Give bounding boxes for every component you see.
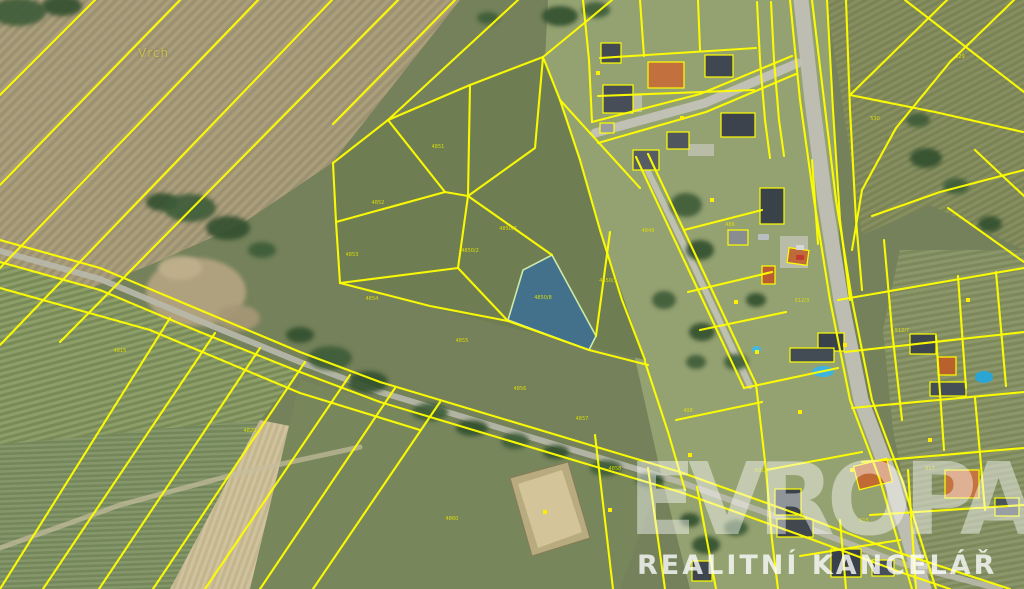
parcel-number-label: 4856: [514, 386, 527, 392]
parcel-number-label: 486: [725, 222, 735, 228]
cadastral-point-symbol: [543, 510, 547, 514]
tree-cluster: [978, 216, 1002, 232]
parcel-number-label: 515: [859, 518, 869, 524]
tree-cluster: [906, 113, 930, 127]
swimming-pool: [975, 371, 993, 383]
tree-cluster: [686, 355, 706, 369]
tree-cluster: [164, 194, 216, 222]
parcel-number-label: 4849: [642, 228, 655, 234]
parcel-number-label: 529: [955, 54, 965, 60]
cadastral-point-symbol: [688, 453, 692, 457]
building: [692, 561, 712, 581]
building: [831, 549, 861, 577]
cadastral-point-symbol: [966, 298, 970, 302]
tree-cluster: [501, 433, 529, 449]
cadastral-point-symbol: [680, 116, 684, 120]
cadastral-point-symbol: [850, 468, 854, 472]
parcel-number-label: 4815: [114, 348, 127, 354]
building: [790, 348, 834, 362]
cadastral-point-symbol: [710, 198, 714, 202]
parcel-number-label: 4850/1: [599, 278, 617, 284]
parcel-number-label: 4852: [372, 200, 385, 206]
tree-cluster: [477, 12, 499, 24]
parcel-number-label: 517: [925, 466, 935, 472]
cadastral-point-symbol: [755, 350, 759, 354]
cadastral-point-symbol: [928, 438, 932, 442]
tree-cluster: [910, 148, 942, 168]
parcel-number-label: 4858: [609, 466, 622, 472]
cadastral-point-symbol: [608, 508, 612, 512]
building: [721, 113, 755, 137]
parcel-number-label: 512/7: [895, 328, 909, 334]
building: [705, 55, 733, 77]
cadastral-point-symbol: [798, 410, 802, 414]
building: [603, 85, 633, 113]
parcel-number-label: 530: [870, 116, 880, 122]
parcel-number-label: 4851: [432, 144, 445, 150]
vehicle: [918, 563, 928, 569]
building: [648, 62, 684, 88]
building: [667, 132, 689, 149]
vehicle: [796, 255, 804, 260]
parcel-number-label: 498: [683, 408, 693, 414]
cadastral-map-viewport[interactable]: 48514852485348544850/24850/84850/1484948…: [0, 0, 1024, 589]
tree-cluster: [206, 216, 250, 240]
parcel-number-label: 4850/3: [499, 226, 517, 232]
vehicle: [796, 245, 804, 250]
aerial-cadastral-map[interactable]: 48514852485348544850/24850/84850/1484948…: [0, 0, 1024, 589]
building: [762, 266, 775, 284]
parcel-number-label: 4854: [366, 296, 379, 302]
tree-cluster: [652, 291, 676, 309]
tree-cluster: [680, 513, 700, 527]
tree-cluster: [746, 293, 766, 307]
tree-cluster: [724, 520, 748, 536]
building: [601, 43, 621, 63]
parcel-number-label: 4853: [346, 252, 359, 258]
parcel-number-label: 4857: [576, 416, 589, 422]
parcel-number-label: 4855: [456, 338, 469, 344]
building: [728, 230, 748, 245]
vehicle: [758, 234, 769, 240]
building: [930, 382, 966, 396]
tree-cluster: [286, 327, 314, 343]
place-label-vrch: Vrch: [138, 46, 169, 60]
parcel-number-label: 4820: [244, 428, 257, 434]
parcel-number-label: 4850/2: [461, 248, 479, 254]
bare-soil-patch: [158, 256, 202, 280]
building: [938, 357, 956, 375]
tree-cluster: [248, 242, 276, 258]
tree-cluster: [689, 323, 715, 341]
tree-cluster: [542, 6, 578, 26]
building: [945, 470, 979, 498]
parcel-number-label: 4860: [446, 516, 459, 522]
parcel-number-label: 512/3: [795, 298, 809, 304]
cadastral-point-symbol: [734, 300, 738, 304]
cadastral-point-symbol: [596, 71, 600, 75]
building: [760, 188, 784, 224]
yard-patch: [688, 144, 714, 156]
cadastral-point-symbol: [843, 343, 847, 347]
parcel-number-label: 501/2: [755, 468, 769, 474]
building: [600, 123, 614, 133]
parcel-number-label: 4850/8: [534, 295, 552, 301]
tree-cluster: [724, 354, 748, 370]
